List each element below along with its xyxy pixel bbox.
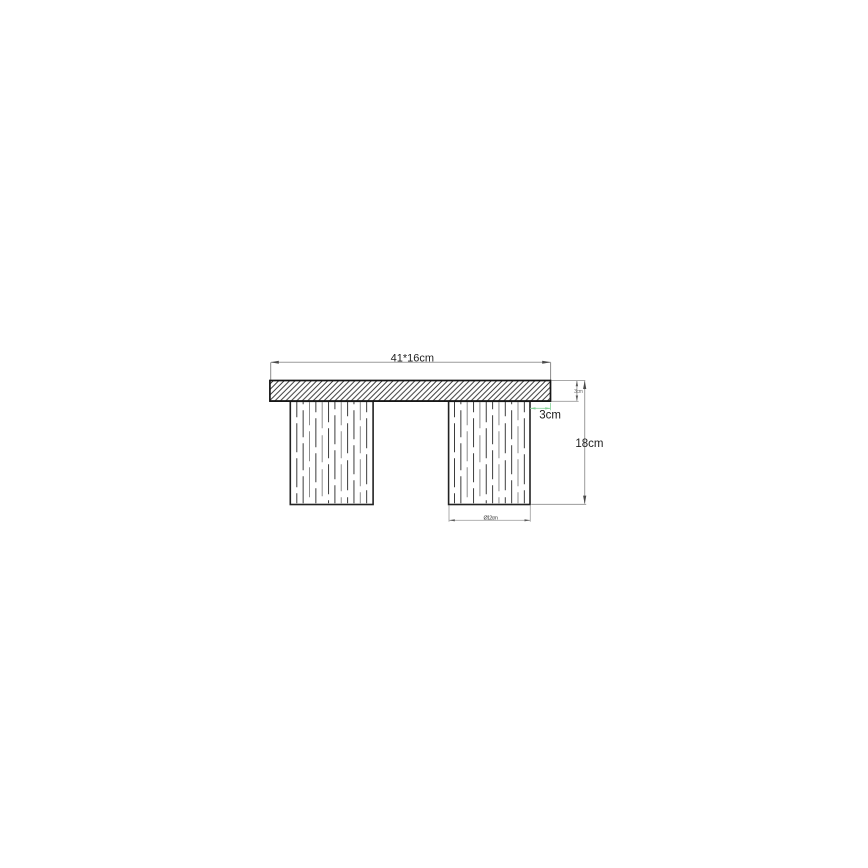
svg-text:41*16cm: 41*16cm <box>391 352 434 364</box>
svg-text:Ø12cm: Ø12cm <box>484 515 499 521</box>
svg-text:3cm: 3cm <box>539 410 561 422</box>
svg-text:3cm: 3cm <box>574 389 583 395</box>
svg-text:18cm: 18cm <box>575 438 603 450</box>
